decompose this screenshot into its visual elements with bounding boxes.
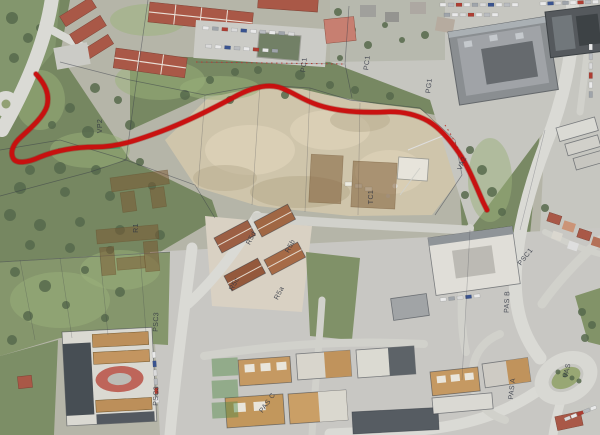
aerial-map: VP2PC1PC1PG1TC1VA2PSC1PAS BPAS AVASR1PSC…: [0, 0, 600, 435]
plan-sheet-haze: [0, 0, 600, 435]
